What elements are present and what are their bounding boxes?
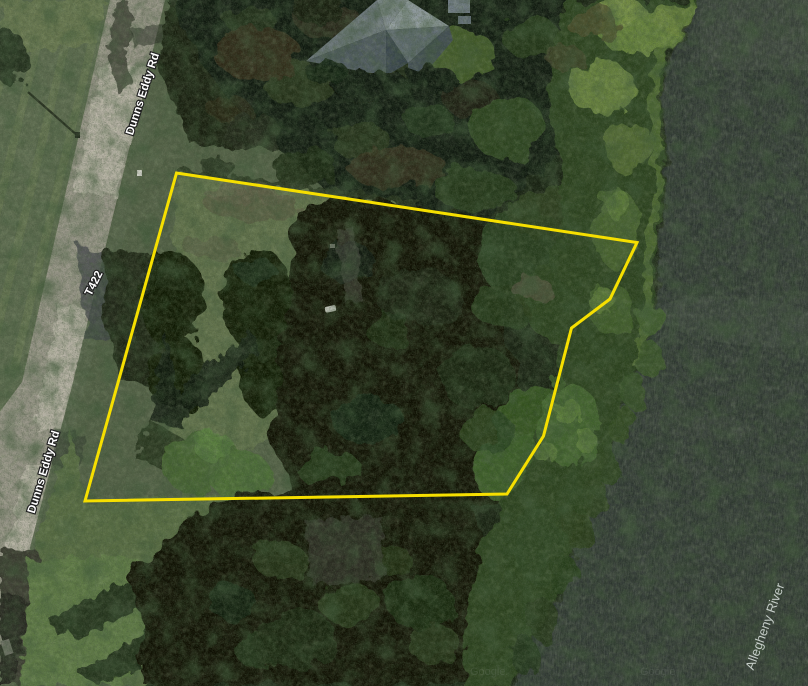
svg-text:Google: Google <box>470 666 505 678</box>
svg-text:Google: Google <box>640 666 675 678</box>
